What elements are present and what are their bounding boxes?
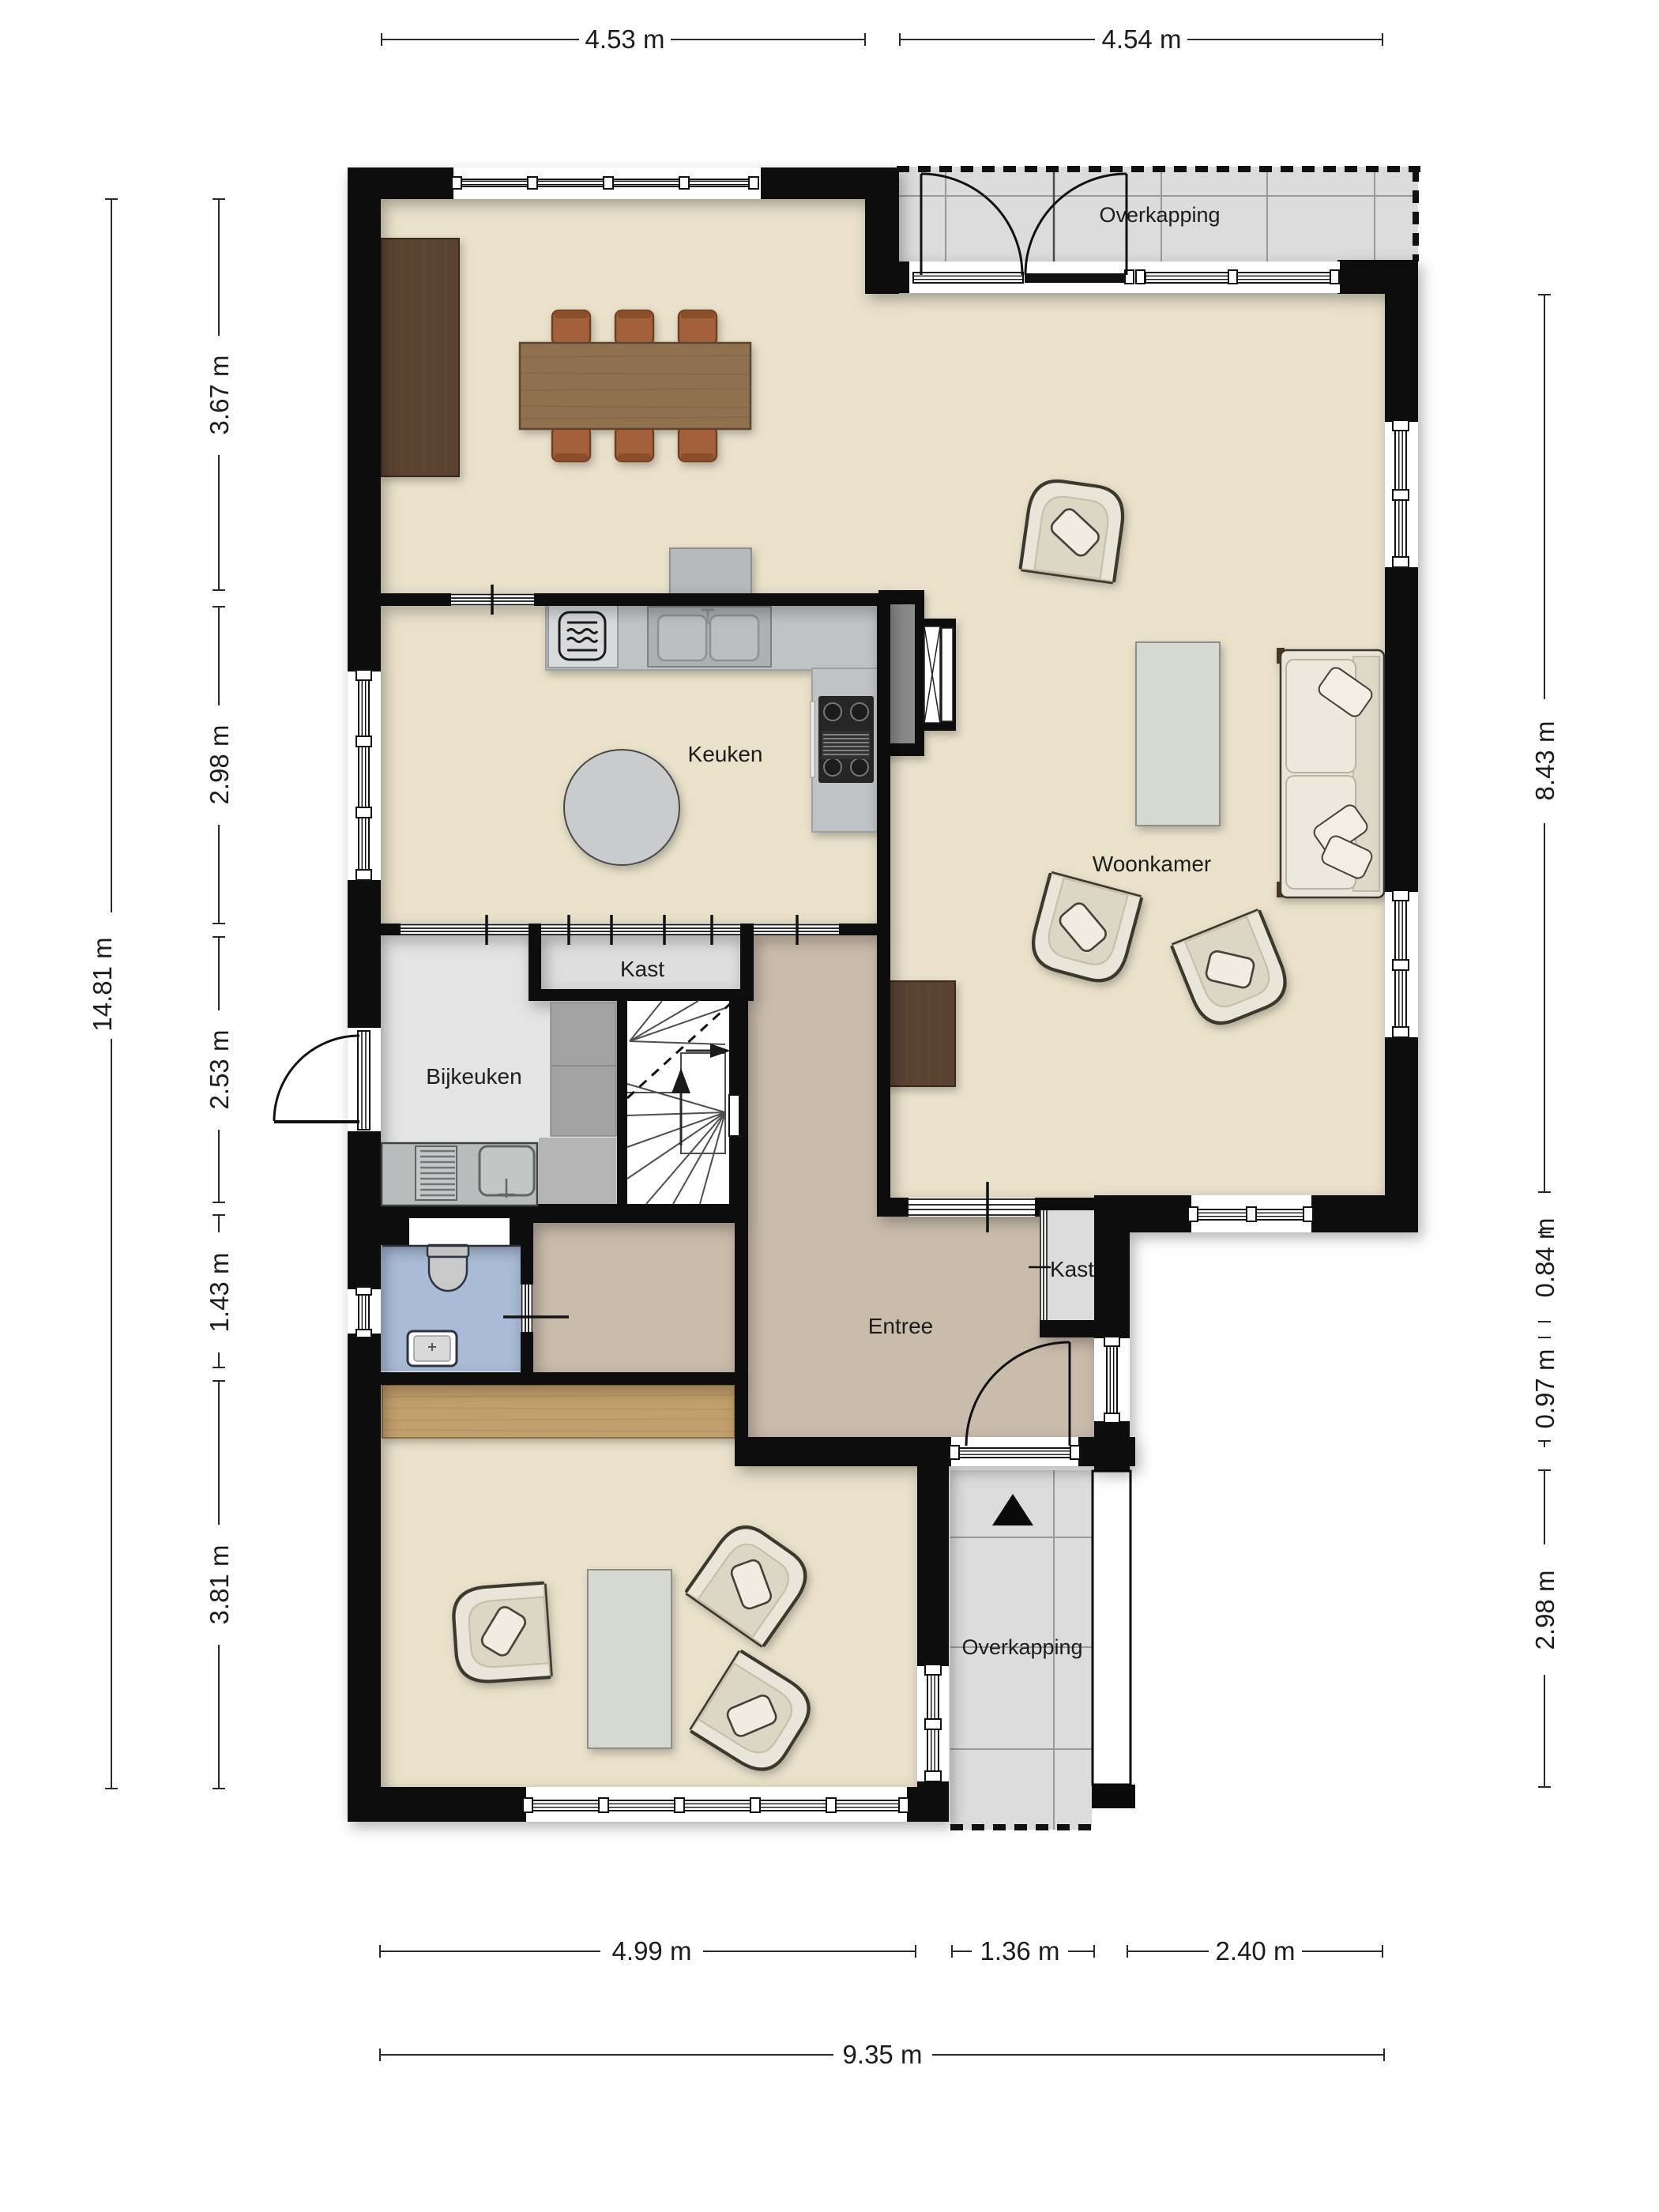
svg-text:Kast: Kast xyxy=(620,957,664,981)
svg-text:4.53 m: 4.53 m xyxy=(585,24,665,54)
svg-text:Overkapping: Overkapping xyxy=(961,1635,1082,1659)
svg-text:2.98 m: 2.98 m xyxy=(205,725,234,805)
svg-text:1.36 m: 1.36 m xyxy=(980,1936,1060,1966)
svg-text:4.54 m: 4.54 m xyxy=(1102,24,1182,54)
svg-text:Kast: Kast xyxy=(1050,1257,1094,1281)
svg-text:9.35 m: 9.35 m xyxy=(843,2040,923,2069)
svg-text:0.97 m: 0.97 m xyxy=(1530,1349,1559,1429)
svg-text:Keuken: Keuken xyxy=(688,742,763,766)
svg-text:3.67 m: 3.67 m xyxy=(205,355,234,435)
svg-text:2.98 m: 2.98 m xyxy=(1530,1571,1559,1650)
svg-text:2.40 m: 2.40 m xyxy=(1216,1936,1296,1966)
svg-text:4.99 m: 4.99 m xyxy=(612,1936,692,1966)
svg-text:Bijkeuken: Bijkeuken xyxy=(426,1064,521,1089)
svg-text:1.43 m: 1.43 m xyxy=(205,1253,234,1333)
svg-text:0.84 m: 0.84 m xyxy=(1530,1218,1559,1298)
svg-text:Woonkamer: Woonkamer xyxy=(1093,852,1211,876)
svg-text:Entree: Entree xyxy=(868,1314,934,1338)
svg-text:3.81 m: 3.81 m xyxy=(205,1545,234,1625)
svg-text:8.43 m: 8.43 m xyxy=(1530,721,1559,801)
svg-text:Overkapping: Overkapping xyxy=(1099,203,1220,227)
svg-text:2.53 m: 2.53 m xyxy=(205,1030,234,1110)
svg-text:14.81 m: 14.81 m xyxy=(88,937,117,1031)
